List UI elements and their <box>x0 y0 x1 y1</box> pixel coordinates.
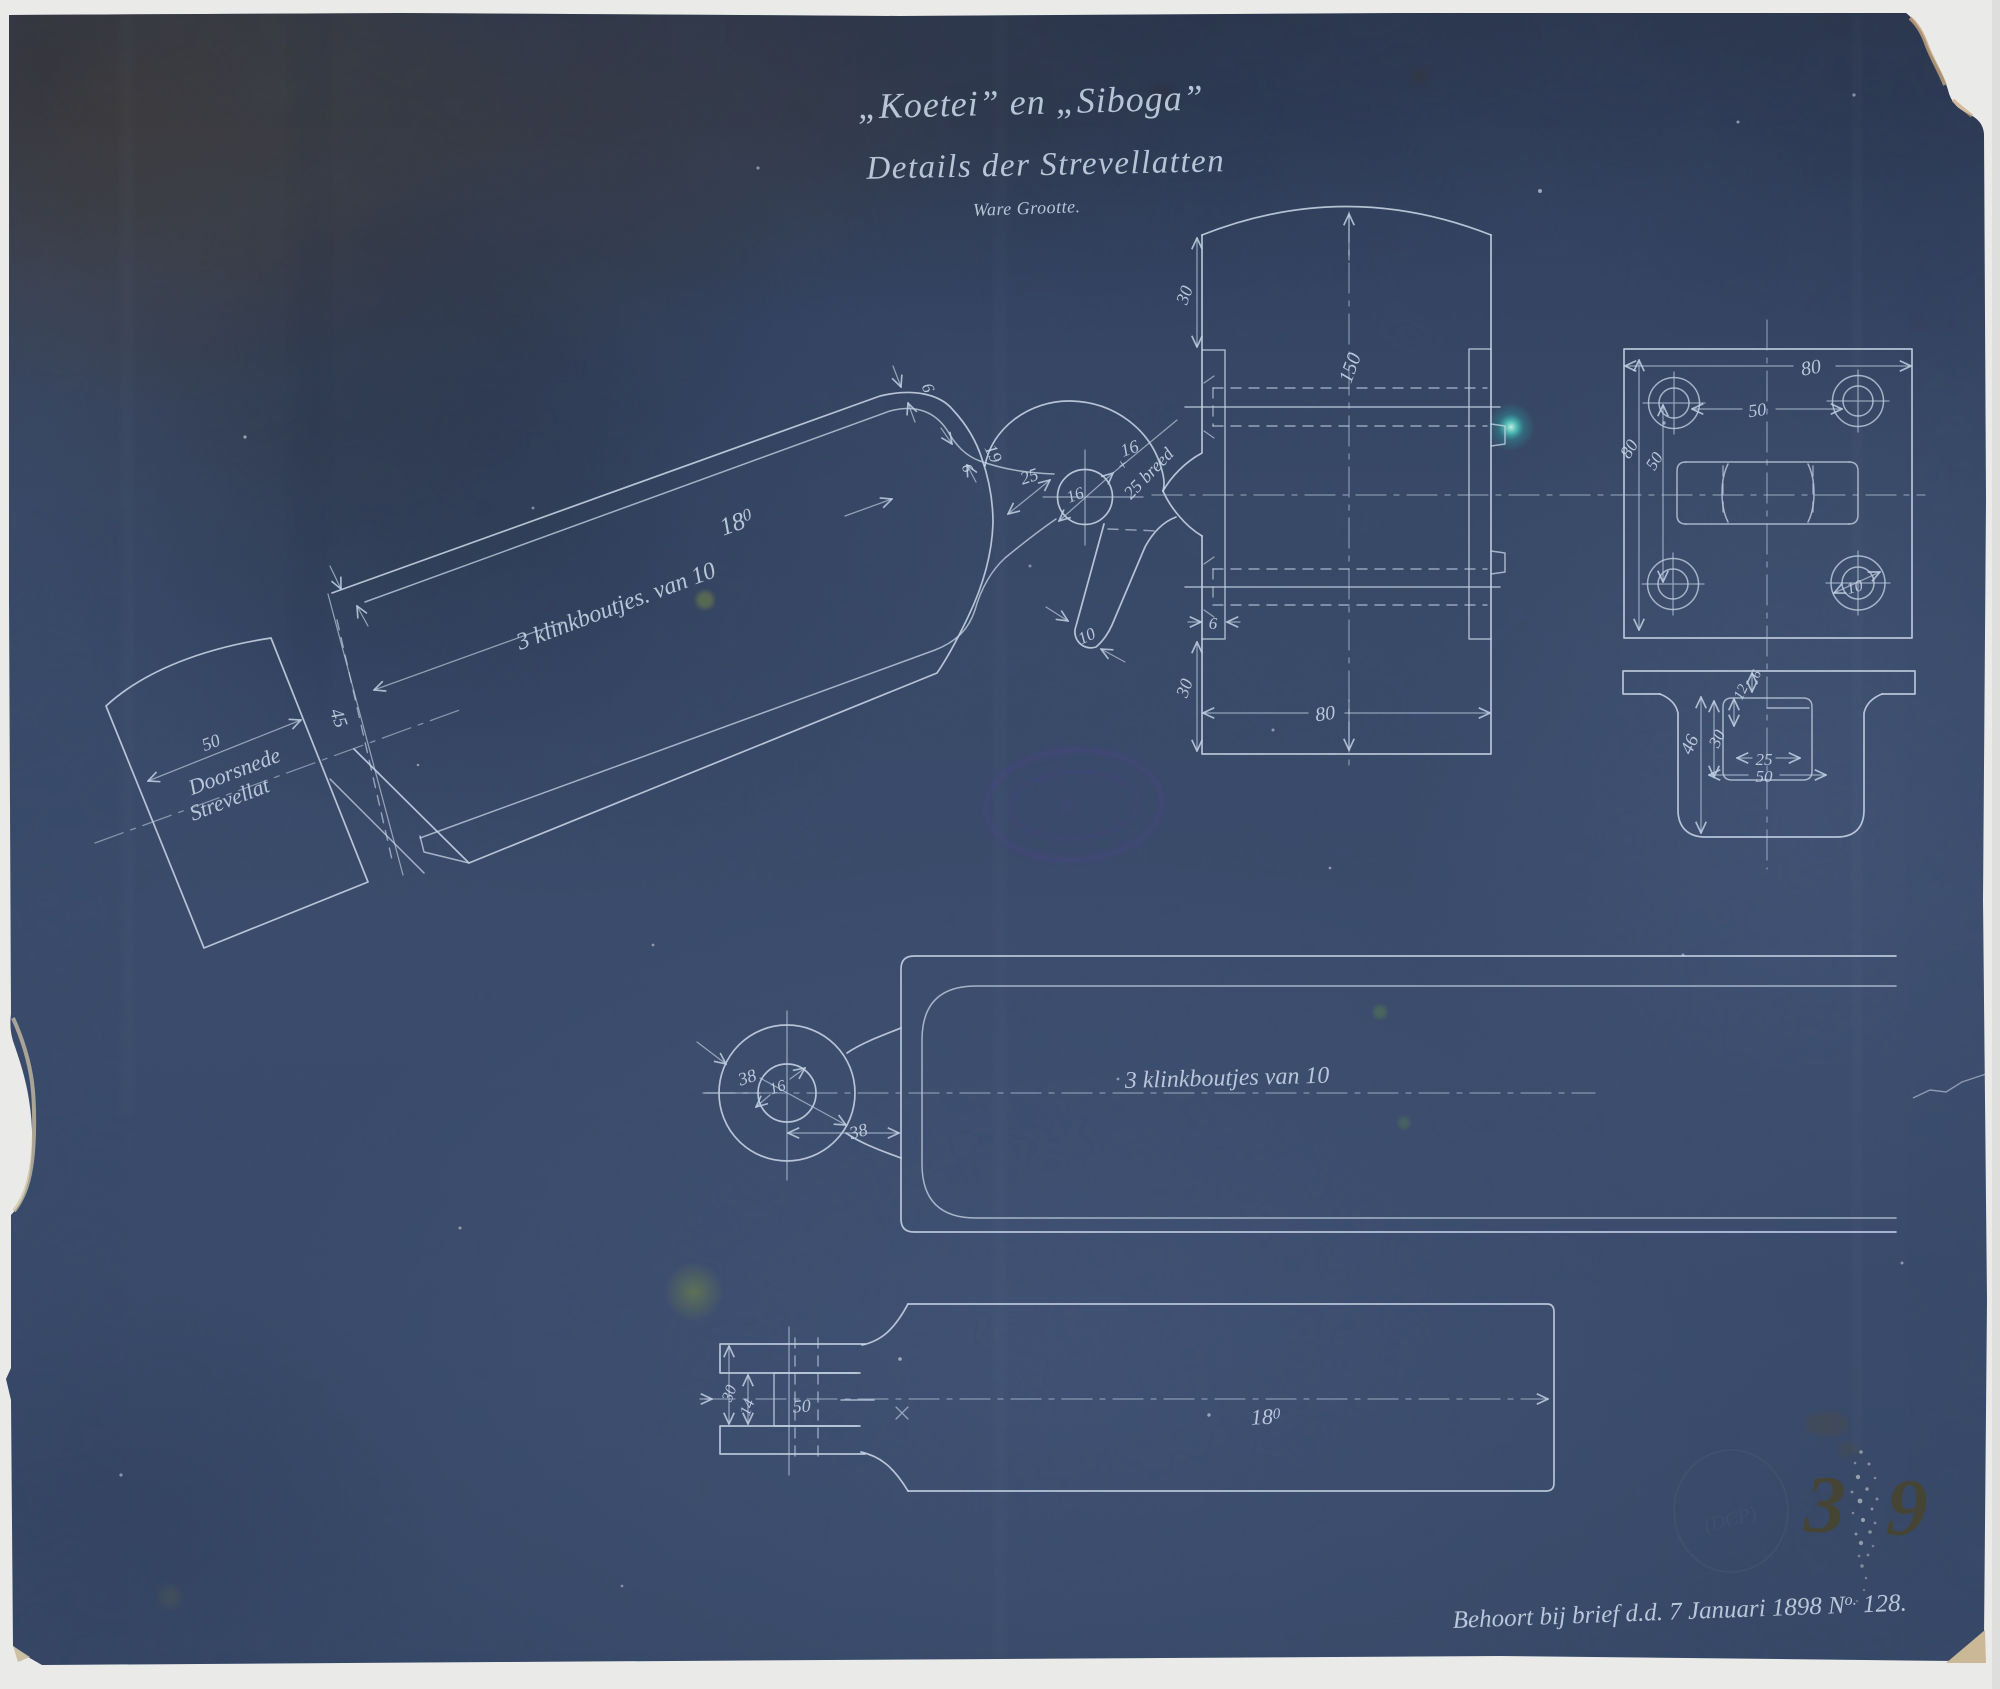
svg-text:N.: N. <box>1057 795 1077 818</box>
svg-text:6: 6 <box>1209 614 1218 633</box>
svg-text:50: 50 <box>1756 767 1774 786</box>
svg-text:9: 9 <box>1885 1461 1929 1553</box>
svg-text:80: 80 <box>1799 356 1823 381</box>
svg-text:50: 50 <box>792 1396 811 1417</box>
svg-text:80: 80 <box>1314 702 1337 727</box>
svg-text:Details der Strevellatten: Details der Strevellatten <box>865 143 1226 187</box>
svg-text:Ware Grootte.: Ware Grootte. <box>973 196 1081 220</box>
svg-text:3 klinkboutjes van 10: 3 klinkboutjes van 10 <box>1123 1063 1329 1094</box>
svg-text:50: 50 <box>1747 399 1768 421</box>
svg-text:3: 3 <box>1802 1458 1847 1550</box>
